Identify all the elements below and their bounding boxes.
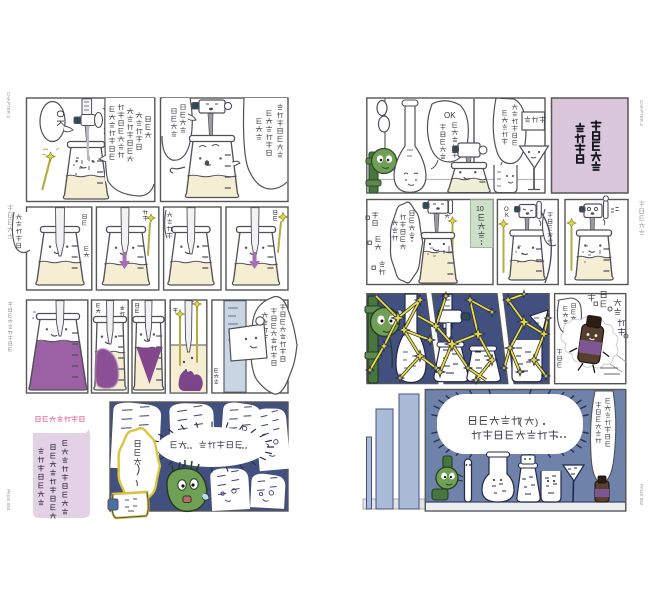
svg-text:PAGE 052: PAGE 052 [639,484,644,506]
svg-text:K: K [505,213,509,219]
svg-text:): ) [535,417,538,428]
svg-text:CHAPTER 3: CHAPTER 3 [639,100,644,126]
svg-text:OK: OK [444,111,456,120]
svg-text:OK: OK [54,110,65,128]
svg-text:CHAPTER 3: CHAPTER 3 [6,92,11,118]
svg-text:PAGE 053: PAGE 053 [6,489,11,511]
svg-text:10: 10 [476,206,484,213]
